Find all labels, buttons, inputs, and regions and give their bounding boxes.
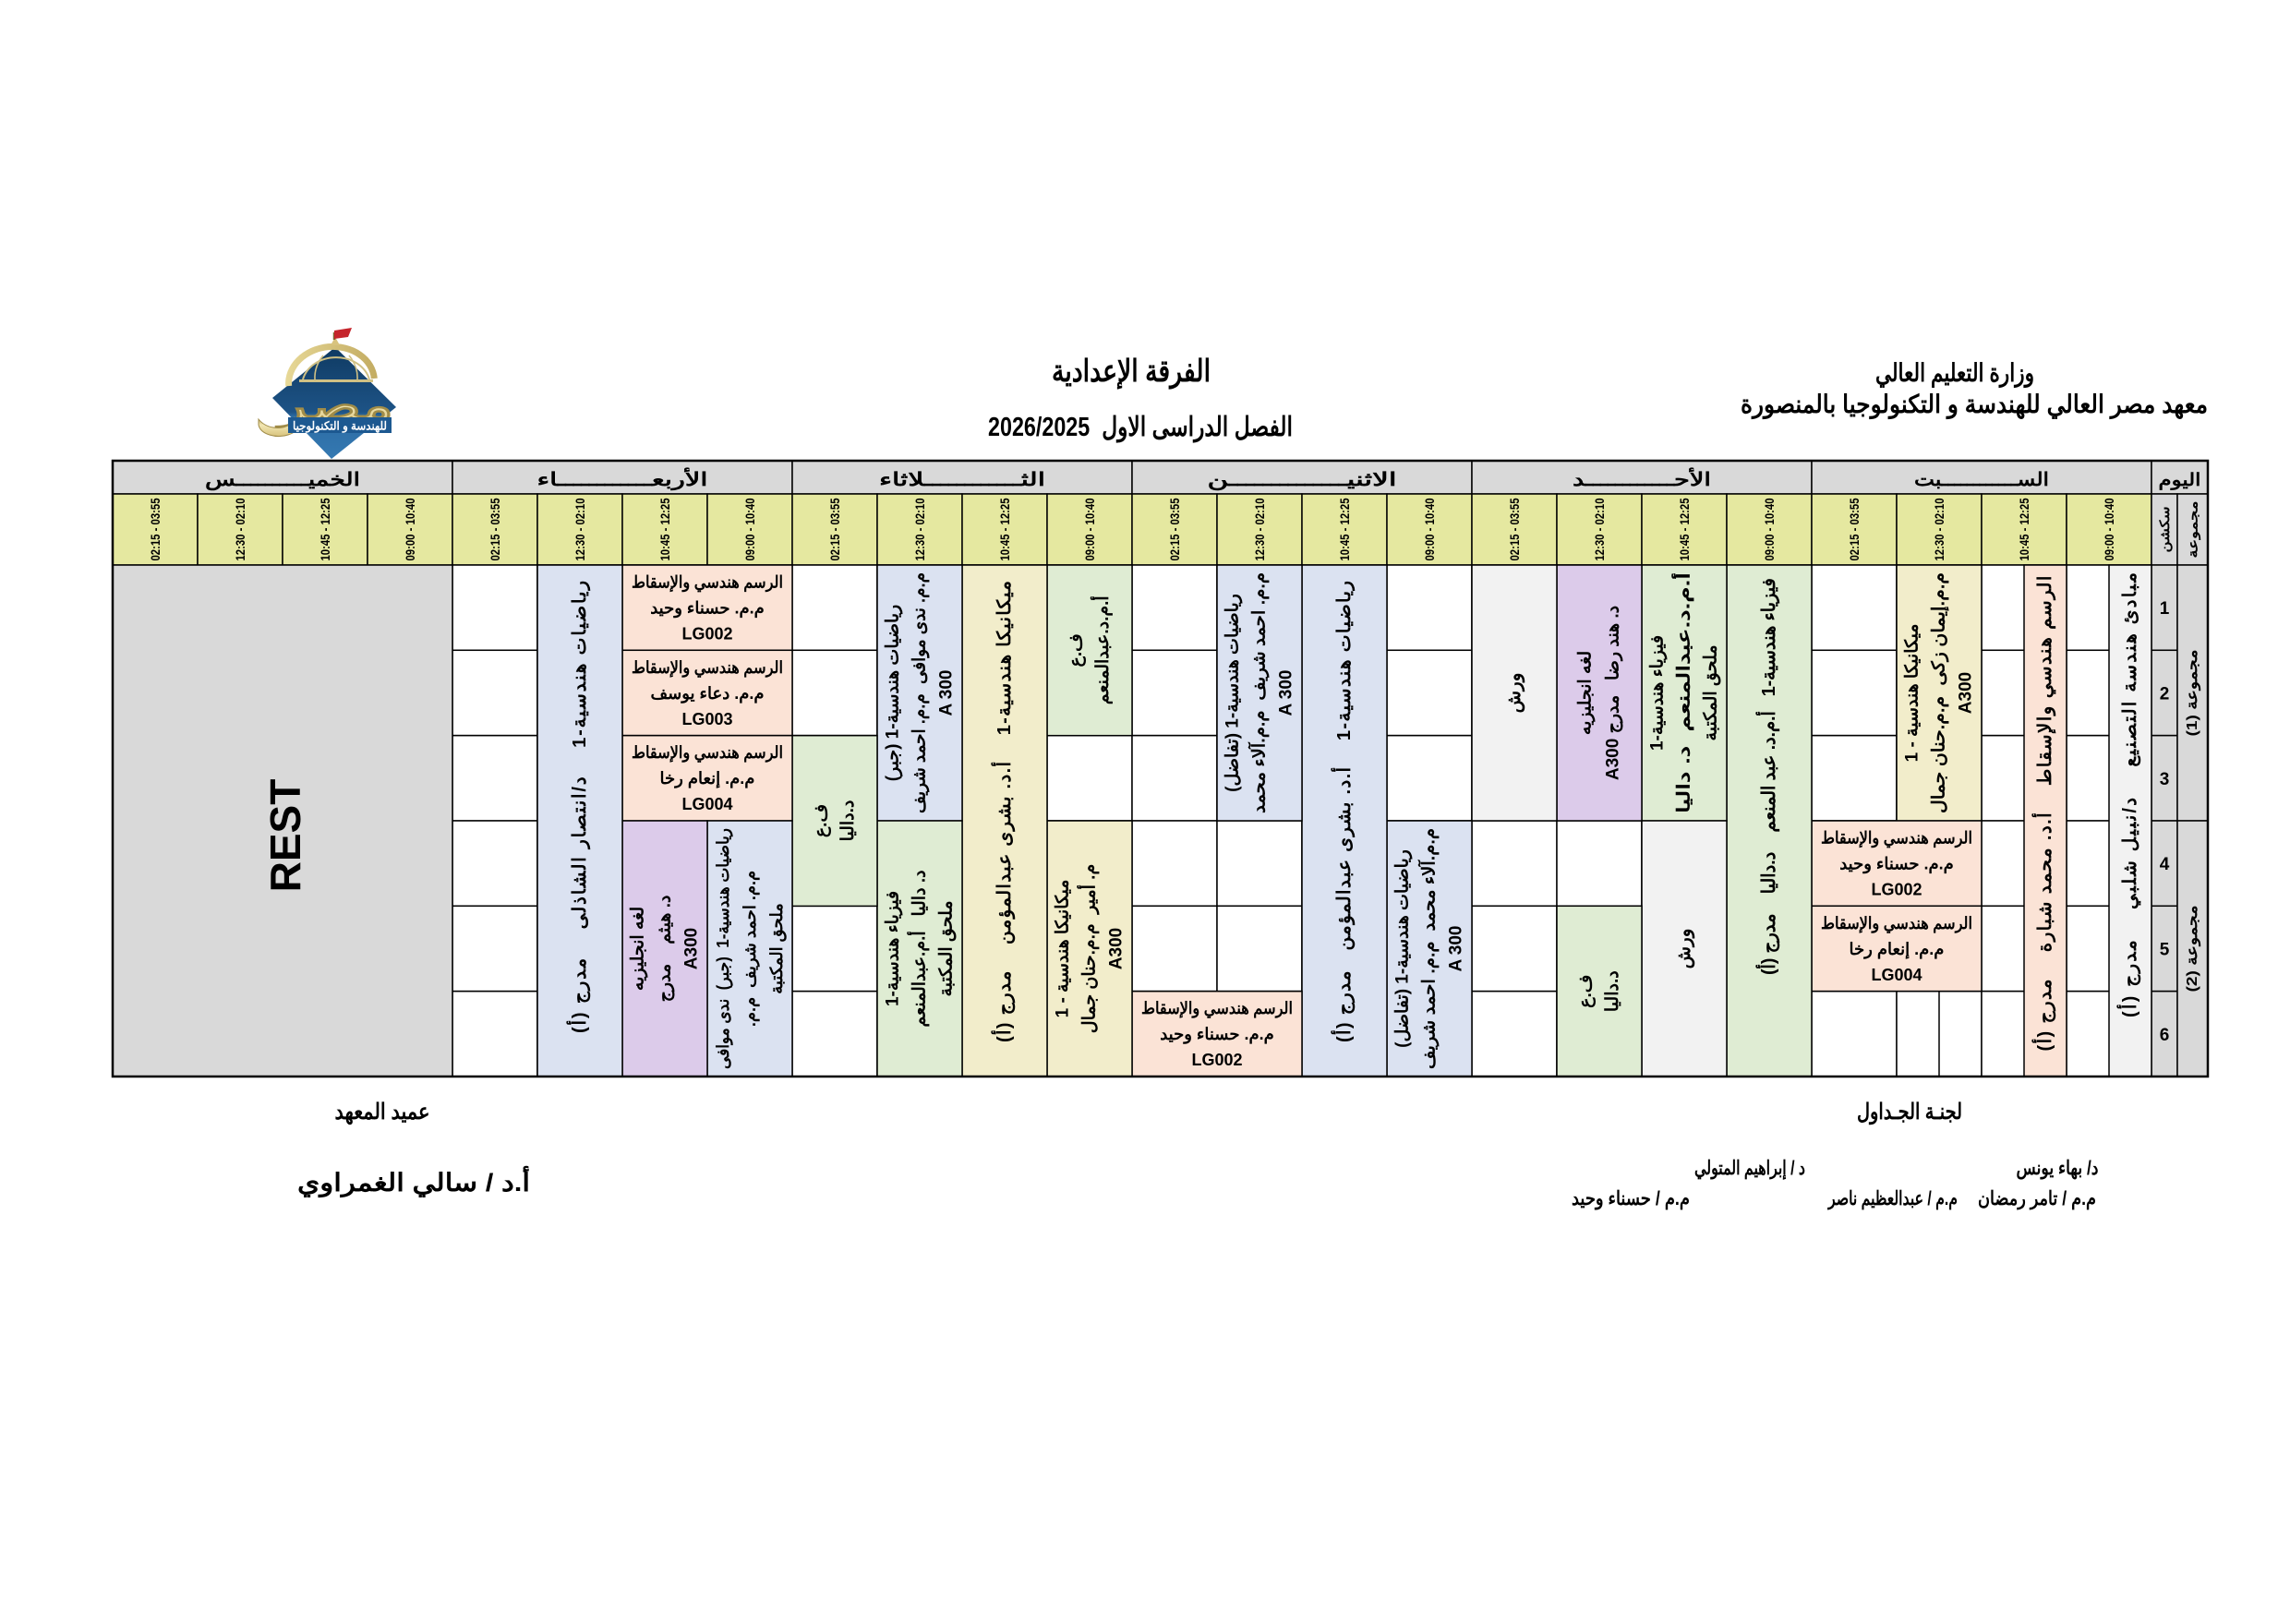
svg-text:رياضيات هندسية-1 أ.د. بشرى: رياضيات هندسية-1 أ.د. بشرى عبدالمؤمن مدر… <box>1331 581 1356 1042</box>
svg-text:الثــــــــــــلاثاء: الثــــــــــــلاثاء <box>879 470 1045 490</box>
svg-text:LG004: LG004 <box>1871 966 1922 984</box>
svg-text:مجموعة (1): مجموعة (1) <box>2185 650 2201 737</box>
svg-text:ميكانيكا هندسية - 1: ميكانيكا هندسية - 1 <box>1903 624 1922 763</box>
svg-text:الأحــــــــــــد: الأحــــــــــــد <box>1573 467 1711 490</box>
svg-text:ورش: ورش <box>1504 673 1525 714</box>
svg-text:10:45 - 12:25: 10:45 - 12:25 <box>1337 498 1352 560</box>
svg-text:الفرقة الإعدادية: الفرقة الإعدادية <box>1052 354 1211 390</box>
svg-text:الرسم هندسي والإسقاط: الرسم هندسي والإسقاط <box>1141 999 1293 1018</box>
svg-text:مبادئ هندسة التصنيع د/نبيل: مبادئ هندسة التصنيع د/نبيل شلبي مدرج (أ) <box>2116 572 2141 1017</box>
svg-text:2: 2 <box>2160 685 2170 704</box>
svg-text:م. أمير م.م.حنان جمال: م. أمير م.م.حنان جمال <box>1077 864 1100 1033</box>
svg-text:لجنـة الجـداول: لجنـة الجـداول <box>1857 1100 1962 1125</box>
svg-text:09:00 - 10:40: 09:00 - 10:40 <box>742 498 757 560</box>
svg-text:رياضيات هندسية-1 (جبر): رياضيات هندسية-1 (جبر) <box>884 605 903 781</box>
svg-text:رياضيات هندسية-1 (تفاضل): رياضيات هندسية-1 (تفاضل) <box>1223 594 1243 792</box>
svg-text:3: 3 <box>2160 770 2170 789</box>
svg-text:للهندسة و التكنولوجيا: للهندسة و التكنولوجيا <box>293 420 387 434</box>
svg-text:1: 1 <box>2160 599 2170 619</box>
svg-text:م.م.آلاء محمد م.م. احمد شريف: م.م.آلاء محمد م.م. احمد شريف <box>1417 828 1440 1069</box>
svg-text:02:15 - 03:55: 02:15 - 03:55 <box>1847 498 1862 560</box>
svg-text:لغه انجليزيه: لغه انجليزيه <box>1576 651 1596 735</box>
svg-text:م.م / تامر رمضان: م.م / تامر رمضان <box>1978 1188 2096 1210</box>
svg-text:12:30 - 02:10: 12:30 - 02:10 <box>233 498 247 560</box>
svg-text:د. داليا أ.م.عبدالمنعم: د. داليا أ.م.عبدالمنعم <box>907 870 930 1027</box>
svg-text:LG002: LG002 <box>1871 881 1922 899</box>
svg-text:رياضيات هندسية-1 (جبر) ندى م: رياضيات هندسية-1 (جبر) ندى موافى <box>714 828 733 1069</box>
svg-text:LG002: LG002 <box>681 625 732 644</box>
svg-text:A 300: A 300 <box>937 670 957 716</box>
svg-text:م.م. إنعام رخا: م.م. إنعام رخا <box>1850 940 1945 959</box>
svg-text:ف.ع: ف.ع <box>812 804 831 837</box>
svg-text:09:00 - 10:40: 09:00 - 10:40 <box>2102 498 2116 560</box>
svg-text:ملحق المكتبة: ملحق المكتبة <box>767 903 787 994</box>
svg-text:ملحق المكتبة: ملحق المكتبة <box>1702 644 1721 740</box>
svg-text:م.م / عبدالعظيم ناصر: م.م / عبدالعظيم ناصر <box>1826 1188 1958 1210</box>
svg-text:ملحق المكتبة: ملحق المكتبة <box>937 900 957 996</box>
svg-text:A300: A300 <box>1957 672 1976 714</box>
svg-text:اليوم: اليوم <box>2159 471 2201 490</box>
svg-text:د. هيثم مدرج: د. هيثم مدرج <box>656 896 675 1003</box>
svg-text:10:45 - 12:25: 10:45 - 12:25 <box>997 498 1012 560</box>
svg-text:د. هند رضا مدرج A300: د. هند رضا مدرج A300 <box>1604 606 1623 780</box>
svg-text:رياضيات هندسية-1 (تفاضل): رياضيات هندسية-1 (تفاضل) <box>1393 849 1413 1048</box>
svg-text:فيزياء هندسية-1: فيزياء هندسية-1 <box>884 891 903 1006</box>
svg-text:د / إبراهيم المتولي: د / إبراهيم المتولي <box>1694 1158 1805 1180</box>
svg-text:الرسم هندسي والإسقاط أ.د. م: الرسم هندسي والإسقاط أ.د. محمد شبارة مدر… <box>2031 576 2056 1052</box>
svg-text:REST: REST <box>261 779 309 893</box>
svg-text:6: 6 <box>2160 1026 2170 1045</box>
svg-text:أ.م.د.عبدالمنعم: أ.م.د.عبدالمنعم <box>1090 595 1113 704</box>
svg-text:أ.د / سالي الغمراوي: أ.د / سالي الغمراوي <box>297 1166 530 1198</box>
svg-text:معهد مصر العالي للهندسة و التك: معهد مصر العالي للهندسة و التكنولوجيا با… <box>1741 391 2208 420</box>
svg-text:02:15 - 03:55: 02:15 - 03:55 <box>827 498 842 560</box>
svg-text:الرسم هندسي والإسقاط: الرسم هندسي والإسقاط <box>632 658 783 678</box>
svg-text:الخميــــــــــس: الخميــــــــــس <box>205 470 360 491</box>
svg-text:02:15 - 03:55: 02:15 - 03:55 <box>488 498 502 560</box>
svg-text:LG003: LG003 <box>681 710 732 728</box>
svg-text:الرسم هندسي والإسقاط: الرسم هندسي والإسقاط <box>632 743 783 763</box>
svg-text:م.م. دعاء يوسف: م.م. دعاء يوسف <box>650 684 764 704</box>
svg-text:10:45 - 12:25: 10:45 - 12:25 <box>1677 498 1692 560</box>
svg-text:د.داليا: د.داليا <box>1603 970 1622 1012</box>
svg-text:02:15 - 03:55: 02:15 - 03:55 <box>1507 498 1522 560</box>
svg-text:12:30 - 02:10: 12:30 - 02:10 <box>1252 498 1267 560</box>
svg-text:م.م. ندى موافى م.م. احمد شريف: م.م. ندى موافى م.م. احمد شريف <box>910 572 930 813</box>
svg-text:10:45 - 12:25: 10:45 - 12:25 <box>657 498 672 560</box>
svg-text:سكشن: سكشن <box>2157 507 2173 553</box>
svg-text:م.م. حسناء وحيد: م.م. حسناء وحيد <box>650 599 765 619</box>
svg-text:الأربعــــــــــــاء: الأربعــــــــــــاء <box>537 467 708 491</box>
svg-text:09:00 - 10:40: 09:00 - 10:40 <box>1082 498 1097 560</box>
svg-text:م.م / حسناء وحيد: م.م / حسناء وحيد <box>1572 1188 1690 1210</box>
svg-text:م.م.إيمان زكى م.م.حنان جمال: م.م.إيمان زكى م.م.حنان جمال <box>1930 572 1950 813</box>
svg-text:10:45 - 12:25: 10:45 - 12:25 <box>318 498 332 560</box>
svg-text:مجموعة: مجموعة <box>2186 501 2201 559</box>
svg-text:وزارة التعليم العالي: وزارة التعليم العالي <box>1875 359 2034 389</box>
svg-text:الرسم هندسي والإسقاط: الرسم هندسي والإسقاط <box>632 573 783 593</box>
svg-text:الرسم هندسي والإسقاط: الرسم هندسي والإسقاط <box>1821 914 1972 933</box>
svg-text:LG004: LG004 <box>681 795 732 813</box>
svg-text:A300: A300 <box>682 928 702 969</box>
svg-text:أ.م.د.عبدالمنعم د. داليا: أ.م.د.عبدالمنعم د. داليا <box>1671 572 1694 813</box>
svg-text:الفصل الدراسى الاول 2026/2025: الفصل الدراسى الاول 2026/2025 <box>988 413 1293 443</box>
svg-text:09:00 - 10:40: 09:00 - 10:40 <box>1422 498 1437 560</box>
svg-text:ميكانيكا هندسية - 1: ميكانيكا هندسية - 1 <box>1054 880 1073 1018</box>
svg-text:فيزياء هندسية-1 أ.م.د. عبد ا: فيزياء هندسية-1 أ.م.د. عبد المنعم د.دالي… <box>1755 578 1780 975</box>
svg-text:الرسم هندسي والإسقاط: الرسم هندسي والإسقاط <box>1821 829 1972 848</box>
svg-text:د/ بهاء يونس: د/ بهاء يونس <box>2017 1158 2099 1180</box>
svg-text:د.داليا: د.داليا <box>838 800 858 842</box>
svg-text:5: 5 <box>2160 941 2170 960</box>
svg-text:A 300: A 300 <box>1447 926 1466 972</box>
svg-text:A300: A300 <box>1107 928 1127 969</box>
svg-text:م.م. احمد شريف م.م.آلاء محمد: م.م. احمد شريف م.م.آلاء محمد <box>1247 572 1270 813</box>
svg-text:لغه انجليزيه: لغه انجليزيه <box>629 907 648 991</box>
svg-text:09:00 - 10:40: 09:00 - 10:40 <box>403 498 417 560</box>
svg-text:12:30 - 02:10: 12:30 - 02:10 <box>572 498 587 560</box>
svg-text:12:30 - 02:10: 12:30 - 02:10 <box>1932 498 1946 560</box>
svg-text:م.م. حسناء وحيد: م.م. حسناء وحيد <box>1839 855 1954 874</box>
svg-text:10:45 - 12:25: 10:45 - 12:25 <box>2017 498 2031 560</box>
svg-text:الاثنيــــــــــــــن: الاثنيــــــــــــــن <box>1208 470 1397 491</box>
svg-text:ف.ع: ف.ع <box>1067 633 1086 667</box>
svg-text:09:00 - 10:40: 09:00 - 10:40 <box>1762 498 1777 560</box>
svg-text:12:30 - 02:10: 12:30 - 02:10 <box>1592 498 1607 560</box>
svg-text:فيزياء هندسية-1: فيزياء هندسية-1 <box>1648 635 1668 751</box>
svg-text:ف.ع: ف.ع <box>1576 975 1596 1008</box>
svg-text:12:30 - 02:10: 12:30 - 02:10 <box>912 498 927 560</box>
svg-text:عميد المعهد: عميد المعهد <box>335 1100 430 1125</box>
svg-text:الســــــــــــبت: الســــــــــــبت <box>1914 470 2049 490</box>
svg-text:م.م. إنعام رخا: م.م. إنعام رخا <box>660 769 755 788</box>
svg-text:A 300: A 300 <box>1277 670 1296 716</box>
svg-text:ورش: ورش <box>1674 929 1695 969</box>
svg-text:4: 4 <box>2160 855 2170 874</box>
svg-text:LG002: LG002 <box>1191 1051 1242 1069</box>
svg-text:مجموعة (2): مجموعة (2) <box>2185 906 2201 992</box>
svg-text:ميكانيكا هندسية-1 أ.د. بشرى: ميكانيكا هندسية-1 أ.د. بشرى عبدالمؤمن مد… <box>991 581 1016 1042</box>
svg-text:م.م. حسناء وحيد: م.م. حسناء وحيد <box>1160 1025 1274 1044</box>
svg-text:02:15 - 03:55: 02:15 - 03:55 <box>148 498 163 560</box>
svg-text:م.م. احمد شريف م.م.: م.م. احمد شريف م.م. <box>741 871 760 1027</box>
svg-text:02:15 - 03:55: 02:15 - 03:55 <box>1167 498 1182 560</box>
